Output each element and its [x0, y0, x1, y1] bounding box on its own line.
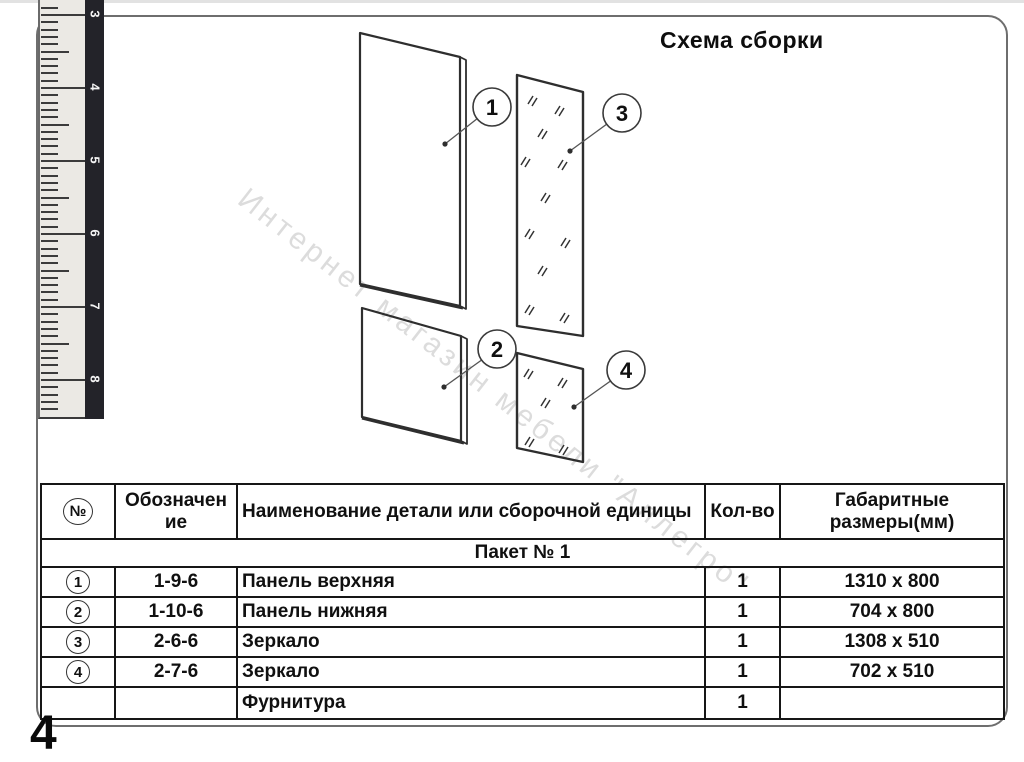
cell-qty: 1 [705, 597, 780, 627]
header-designation: Обозначение [115, 484, 237, 539]
cell-dims [780, 687, 1004, 719]
panel-top-bottom-edge [360, 285, 463, 308]
package-label: Пакет № 1 [41, 539, 1004, 567]
cell-name: Панель верхняя [237, 567, 705, 597]
table-row: 2 1-10-6 Панель нижняя 1 704 x 800 [41, 597, 1004, 627]
cell-qty: 1 [705, 687, 780, 719]
row-number-badge: 3 [66, 630, 90, 654]
package-row: Пакет № 1 [41, 539, 1004, 567]
cell-qty: 1 [705, 567, 780, 597]
cell-name: Панель нижняя [237, 597, 705, 627]
page-number: 4 [30, 706, 57, 761]
callout-number-4: 4 [620, 358, 633, 383]
header-name: Наименование детали или сборочной единиц… [237, 484, 705, 539]
callout-number-1: 1 [486, 95, 498, 120]
row-number-badge: 1 [66, 570, 90, 594]
panel-top [360, 33, 460, 306]
cell-name: Зеркало [237, 627, 705, 657]
row-number-badge [66, 688, 90, 712]
row-number-badge: 2 [66, 600, 90, 624]
table-header-row: № Обозначение Наименование детали или сб… [41, 484, 1004, 539]
table-row: 1 1-9-6 Панель верхняя 1 1310 x 800 [41, 567, 1004, 597]
cell-designation: 1-9-6 [115, 567, 237, 597]
cell-name: Фурнитура [237, 687, 705, 719]
table-row: Фурнитура 1 [41, 687, 1004, 719]
table-row: 3 2-6-6 Зеркало 1 1308 x 510 [41, 627, 1004, 657]
cell-qty: 1 [705, 657, 780, 687]
num-header-badge: № [63, 498, 93, 525]
cell-designation: 2-6-6 [115, 627, 237, 657]
cell-designation: 1-10-6 [115, 597, 237, 627]
cell-designation [115, 687, 237, 719]
callout-leaders [444, 107, 626, 407]
row-number-badge: 4 [66, 660, 90, 684]
header-qty: Кол-во [705, 484, 780, 539]
parts-table: № Обозначение Наименование детали или сб… [40, 483, 1005, 720]
cell-qty: 1 [705, 627, 780, 657]
mirror-tall [517, 75, 583, 336]
callout-number-3: 3 [616, 101, 628, 126]
cell-designation: 2-7-6 [115, 657, 237, 687]
cell-dims: 704 x 800 [780, 597, 1004, 627]
callout-number-2: 2 [491, 337, 503, 362]
cell-dims: 1310 x 800 [780, 567, 1004, 597]
header-num: № [41, 484, 115, 539]
table-row: 4 2-7-6 Зеркало 1 702 x 510 [41, 657, 1004, 687]
header-dims: Габаритные размеры(мм) [780, 484, 1004, 539]
mirror-hatches [521, 96, 570, 455]
cell-dims: 1308 x 510 [780, 627, 1004, 657]
cell-dims: 702 x 510 [780, 657, 1004, 687]
panel-bottom-bottom-edge [362, 418, 464, 443]
cell-name: Зеркало [237, 657, 705, 687]
